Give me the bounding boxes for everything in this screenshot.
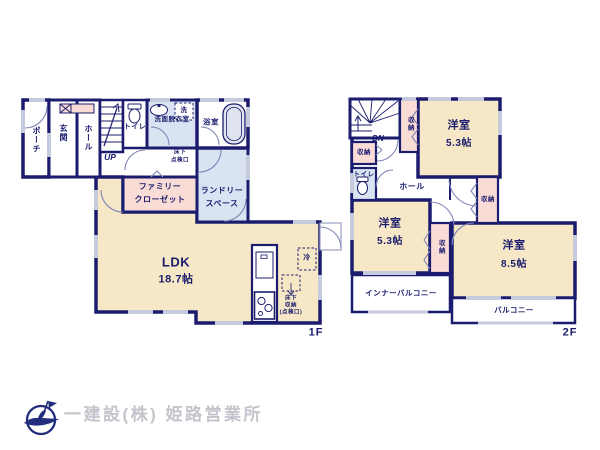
label-inner-balcony: インナーバルコニー [365,289,437,297]
floor2-tag: 2F [563,328,578,339]
washbasin-icon [151,104,168,115]
label-stairs-down: DN [372,135,384,143]
company-name: 一建設(株) 姫路営業所 [64,400,263,425]
vestibule-2f [450,177,477,223]
label-porch: ポーチ [32,127,40,154]
label-room-53b: 洋室 [379,219,402,230]
kitchen-counter-icon [252,245,277,322]
stairs-1f [100,100,123,152]
label-stairs-up: UP [104,153,116,162]
label-storage-b: 収納 [406,117,413,132]
label-underfloor-hatch: 点検口 [171,158,189,164]
label-room-85: 洋室 [503,241,526,252]
label-hall-1f: ホール [84,125,92,152]
label-storage-d: 収納 [481,197,495,204]
label-fridge: 冷 [303,255,311,262]
label-room-85-size: 8.5帖 [501,260,527,270]
toilet-icon [357,177,368,195]
label-bath: 浴室 [203,118,219,126]
label-underfloor-storage: 床下 [285,296,297,302]
floor1-plan [23,95,348,345]
floor1-tag: 1F [309,328,324,339]
label-ldk-size: 18.7帖 [159,275,194,286]
toilet-icon [128,104,141,123]
label-family-closet: クローゼット [135,196,186,204]
label-laundry: スペース [205,200,238,208]
label-family-closet: ファミリー [139,183,182,191]
kitchen-sink-icon [256,252,273,278]
label-toilet-1f: トイレ [124,124,147,131]
bathtub-icon [223,104,245,144]
label-room-53b-size: 5.3帖 [377,237,403,247]
label-storage-c: 収納 [437,240,444,255]
label-storage-a: 収納 [357,150,371,157]
label-entrance: 玄関 [59,124,67,142]
shoe-cabinet-icon [60,104,94,113]
label-balcony: バルコニー [494,306,534,314]
label-room-53a: 洋室 [448,121,471,132]
company-logo-icon [22,394,66,442]
label-washroom: 洗面脱衣室 [155,117,190,124]
room-laundry [197,148,248,222]
label-room-53a-size: 5.3帖 [446,139,472,149]
label-underfloor-storage: (点検口) [280,310,303,316]
label-laundry: ランドリー [201,187,244,195]
label-hall-2f: ホール [399,183,425,191]
label-washer: 洗 [181,108,188,115]
label-underfloor-hatch: 床下 [174,150,186,156]
label-toilet-2f: トイレ [354,172,375,179]
floor-plan-page: ポーチ 玄関 ホール UP トイレ 洗面脱衣室 洗 浴室 床下 点検口 ファミリ… [0,0,600,450]
label-ldk: LDK [162,256,190,269]
label-underfloor-storage: 収納 [285,303,297,309]
